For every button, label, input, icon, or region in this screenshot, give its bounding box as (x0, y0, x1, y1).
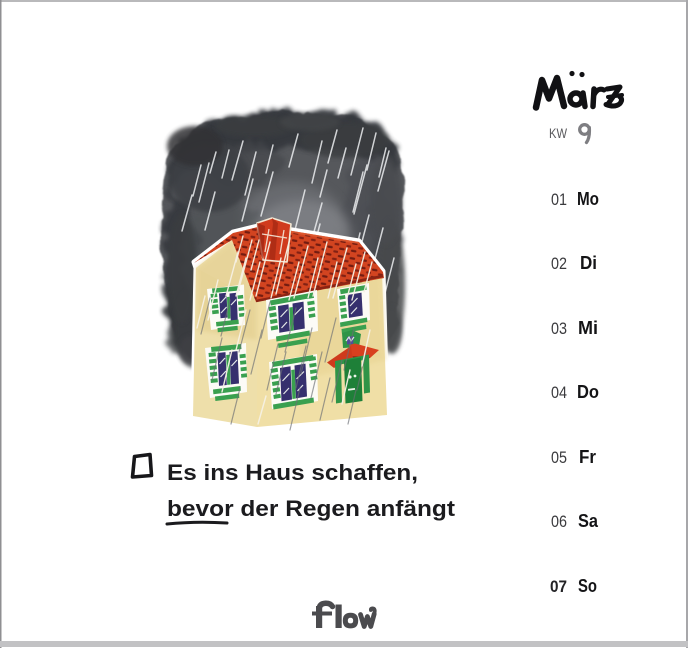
svg-text:07: 07 (550, 578, 567, 596)
svg-text:Mo: Mo (577, 189, 599, 209)
svg-text:06: 06 (551, 513, 567, 531)
svg-text:03: 03 (551, 320, 567, 338)
svg-text:So: So (578, 576, 597, 596)
svg-text:01: 01 (551, 191, 567, 209)
svg-text:Do: Do (577, 382, 599, 402)
svg-text:Mi: Mi (578, 318, 598, 338)
svg-text:05: 05 (551, 449, 567, 467)
svg-text:02: 02 (551, 255, 567, 273)
svg-text:Es ins Haus schaffen,: Es ins Haus schaffen, (167, 460, 418, 485)
svg-text:Sa: Sa (578, 511, 599, 531)
svg-text:bevor der Regen anfängt: bevor der Regen anfängt (167, 496, 456, 521)
svg-text:Di: Di (580, 253, 597, 273)
svg-text:Fr: Fr (579, 447, 596, 467)
svg-text:04: 04 (551, 384, 567, 402)
svg-text:KW: KW (549, 126, 567, 141)
